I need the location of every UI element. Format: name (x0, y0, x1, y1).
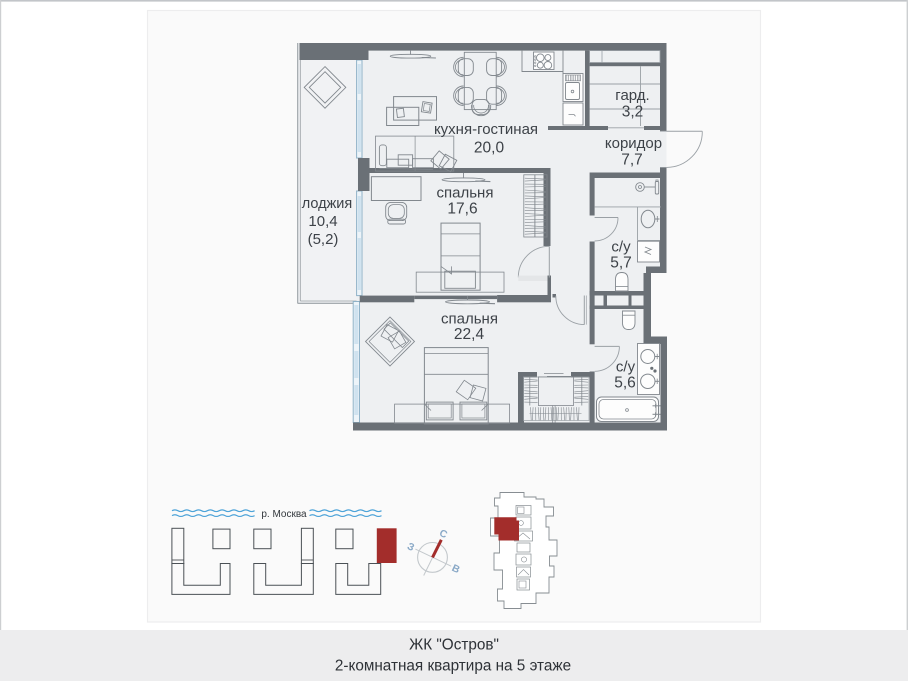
svg-text:спальня: спальня (441, 311, 498, 328)
svg-text:лоджия: лоджия (302, 196, 352, 212)
svg-text:17,6: 17,6 (447, 201, 477, 218)
svg-text:20,0: 20,0 (474, 140, 505, 157)
svg-text:коридор: коридор (605, 135, 662, 152)
svg-text:5,7: 5,7 (610, 255, 632, 272)
svg-text:спальня: спальня (437, 185, 494, 202)
svg-text:7,7: 7,7 (621, 152, 643, 169)
svg-text:с/у: с/у (611, 239, 631, 256)
svg-text:5,6: 5,6 (614, 375, 636, 392)
svg-text:22,4: 22,4 (454, 326, 485, 343)
svg-text:с/у: с/у (616, 359, 636, 376)
svg-text:3,2: 3,2 (622, 104, 644, 121)
svg-text:р. Москва: р. Москва (261, 509, 307, 520)
svg-text:кухня-гостиная: кухня-гостиная (434, 121, 538, 138)
svg-text:гард.: гард. (615, 87, 649, 104)
svg-text:10,4: 10,4 (308, 213, 337, 230)
svg-text:ЖК "Остров": ЖК "Остров" (409, 637, 499, 654)
svg-text:2-комнатная квартира на 5 этаж: 2-комнатная квартира на 5 этаже (335, 658, 571, 675)
svg-text:(5,2): (5,2) (308, 231, 339, 248)
